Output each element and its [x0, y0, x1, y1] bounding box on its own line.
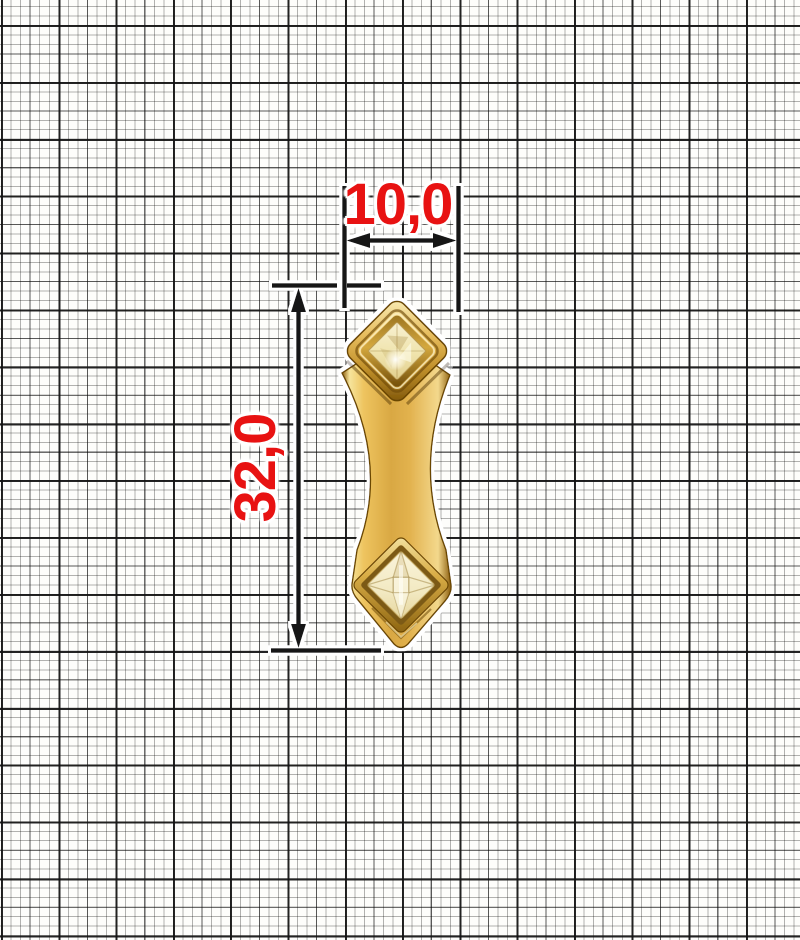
drawing-canvas: 10,0 32,0 [0, 0, 800, 940]
height-dimension-label: 32,0 [230, 409, 282, 527]
technical-drawing-overlay [0, 0, 800, 940]
width-dimension-label: 10,0 [339, 179, 457, 231]
height-arrowhead-top [291, 288, 306, 312]
gold-fitting [342, 297, 451, 647]
height-arrowhead-bottom [291, 624, 306, 648]
